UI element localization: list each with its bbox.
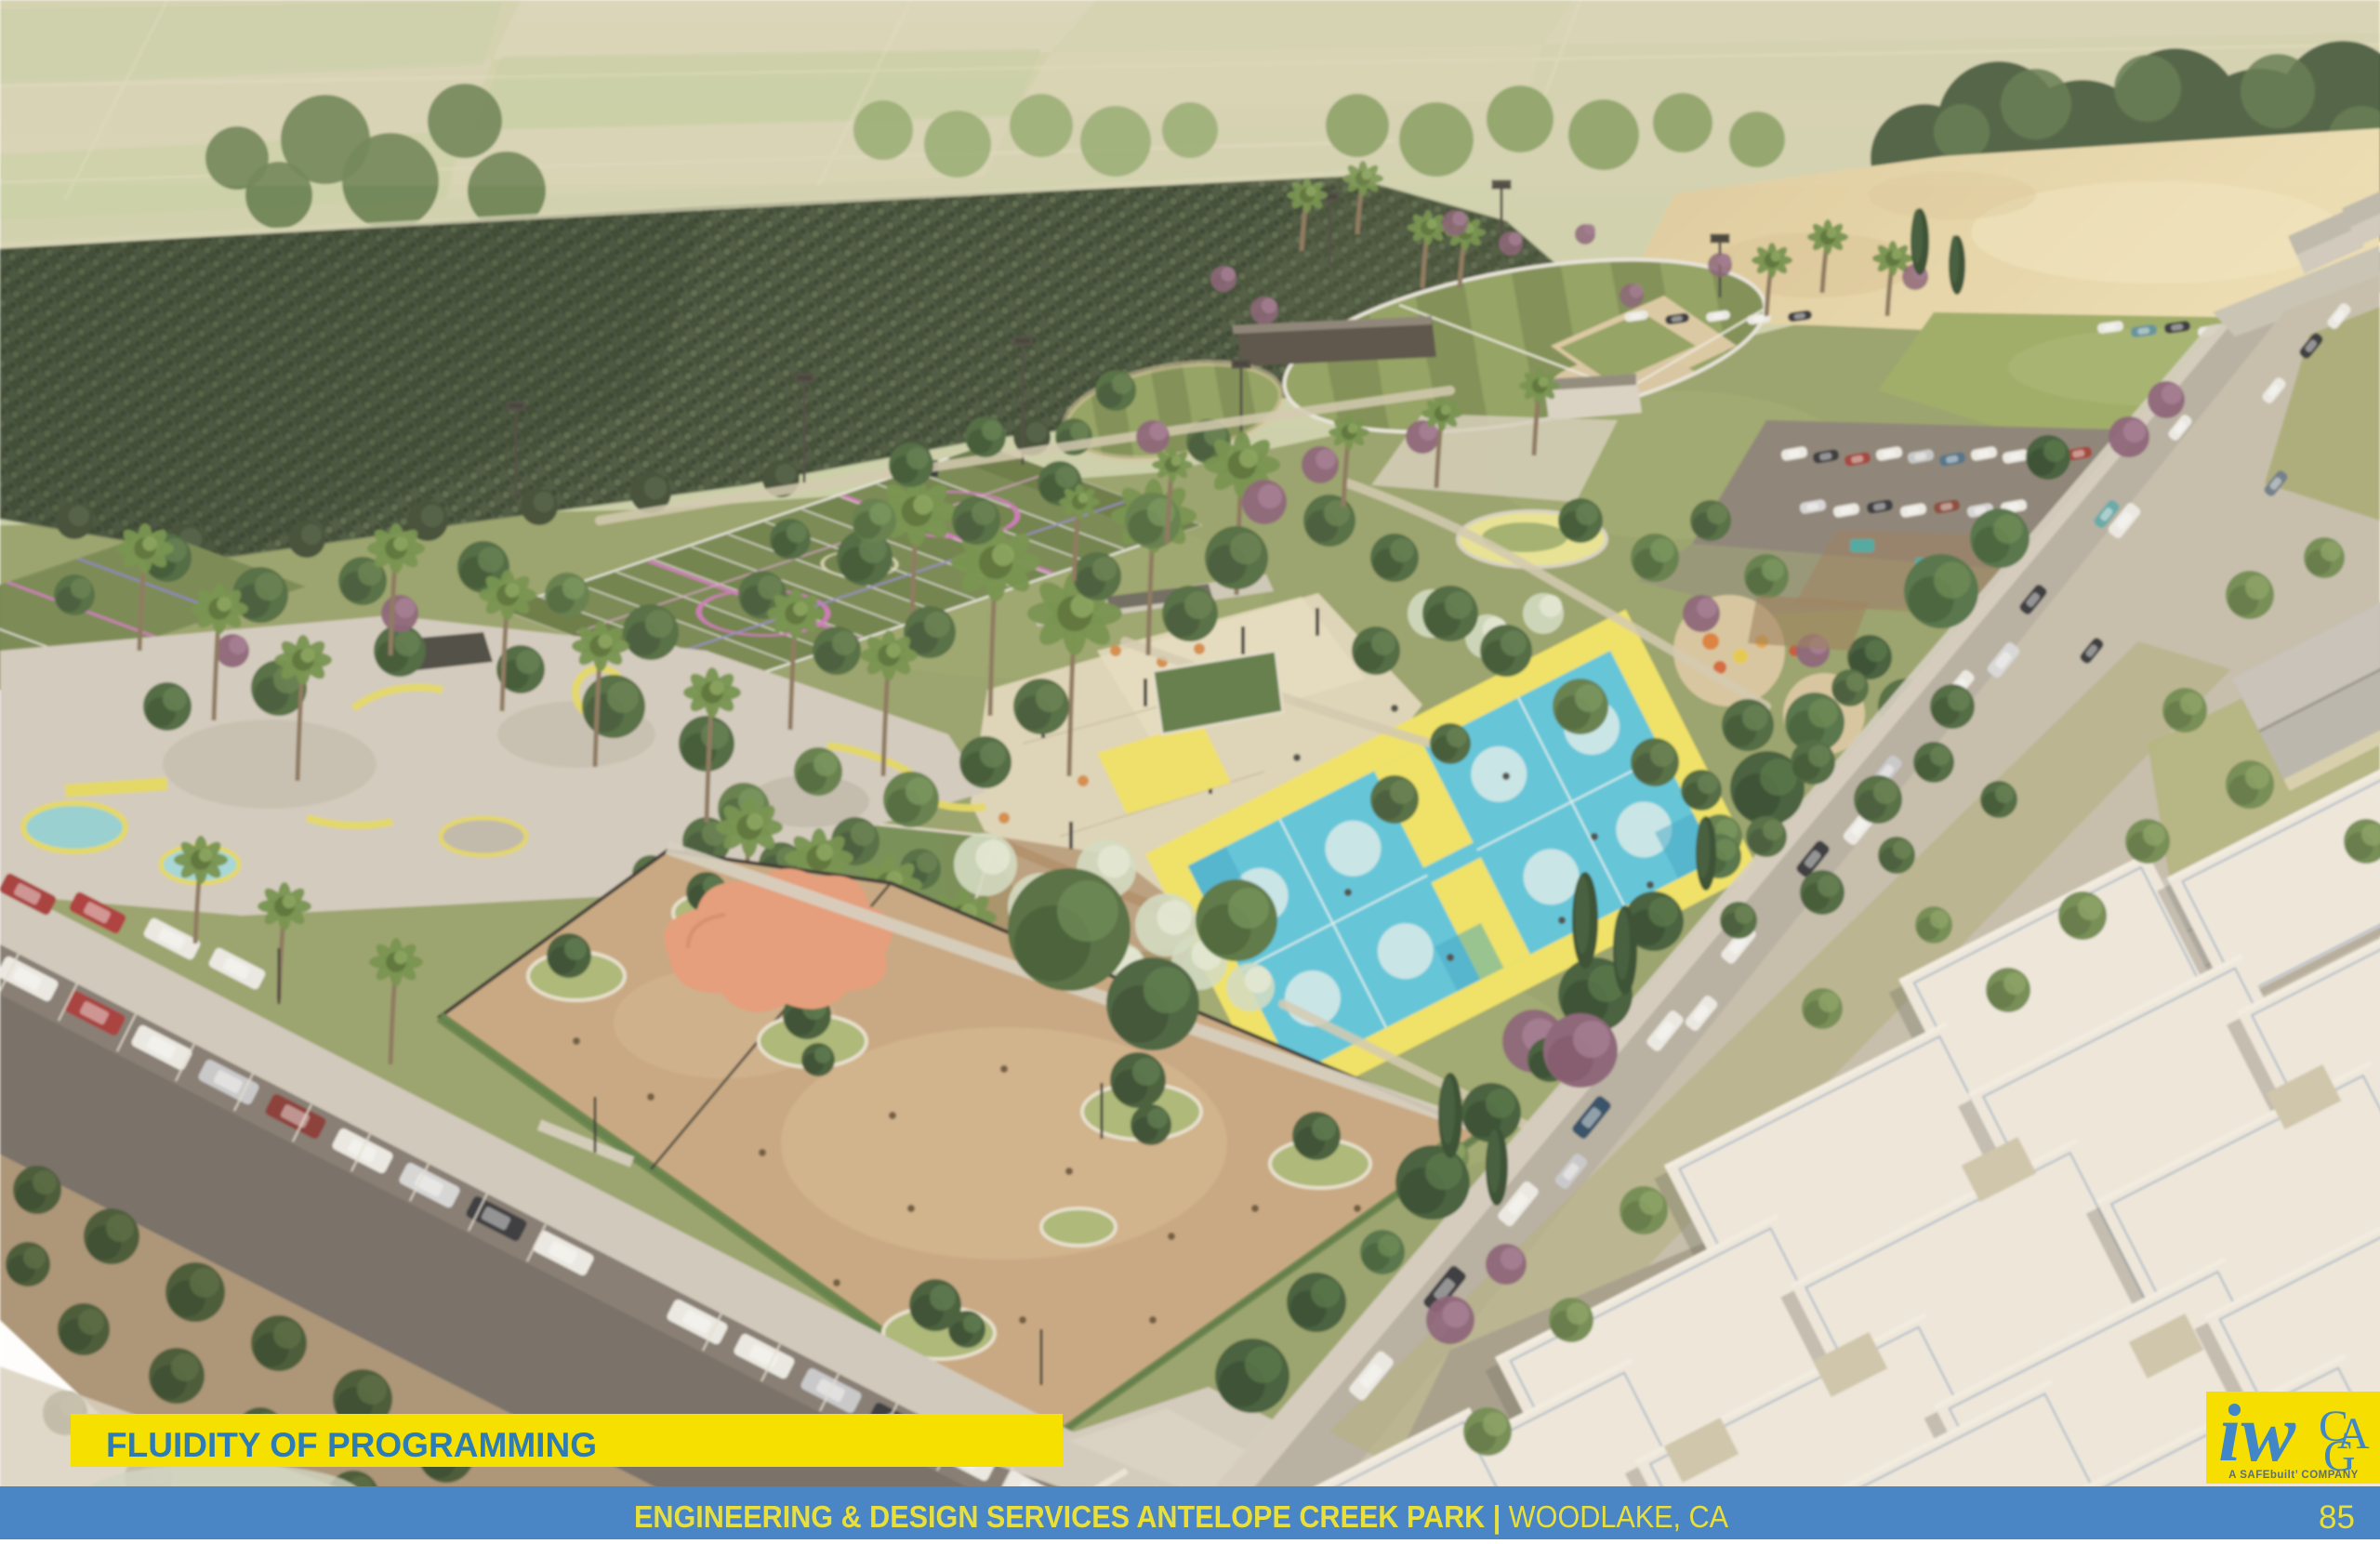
svg-text:FLUIDITY OF PROGRAMMING: FLUIDITY OF PROGRAMMING <box>106 1426 597 1464</box>
svg-text:A SAFEbuilt’ COMPANY: A SAFEbuilt’ COMPANY <box>2228 1470 2359 1481</box>
svg-text:85: 85 <box>2319 1499 2355 1536</box>
svg-text:iw: iw <box>2218 1389 2295 1479</box>
svg-text:ENGINEERING & DESIGN SERVICES: ENGINEERING & DESIGN SERVICES ANTELOPE C… <box>634 1499 1728 1534</box>
